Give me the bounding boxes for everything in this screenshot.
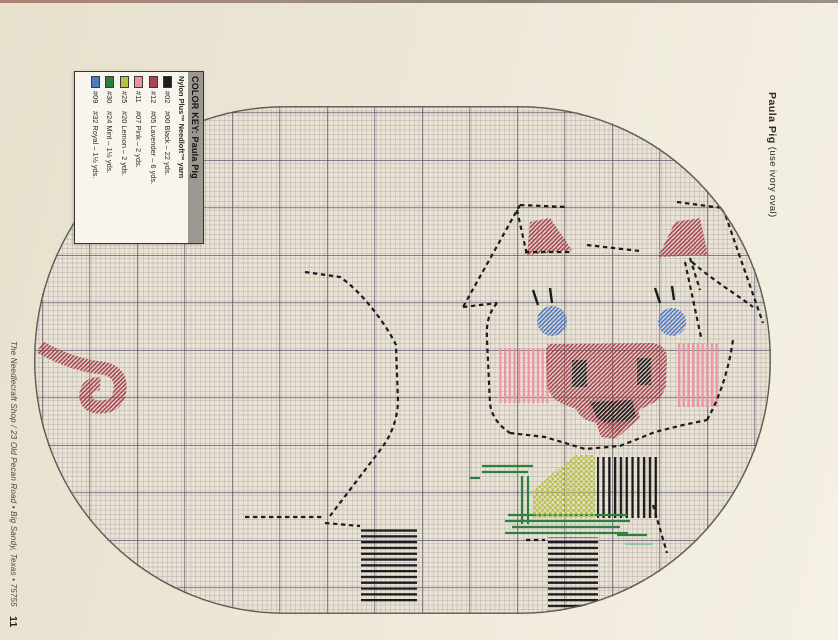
key-row: #11#07 Pink – 2 yds. — [132, 74, 147, 241]
color-key-header: Nylon Plus™ Needloft™ yarn — [175, 74, 187, 241]
needloft-yarn-label: #32 Royal – 1½ yds. — [91, 111, 100, 178]
color-swatch — [163, 76, 172, 88]
color-key-body: Nylon Plus™ Needloft™ yarn #02#00 Black … — [75, 72, 188, 243]
color-swatch — [105, 76, 114, 88]
color-swatch — [149, 76, 158, 88]
cheek-right-pink — [677, 343, 720, 407]
color-key-rows: #02#00 Black – 22 yds.#12#05 Lavender – … — [88, 74, 175, 241]
nylon-plus-number: #02 — [163, 91, 172, 108]
needloft-yarn-label: #24 Mint – 1½ yds. — [105, 111, 114, 173]
nostril-left — [572, 360, 587, 387]
key-row: #25#20 Lemon – 2 yds. — [117, 74, 132, 241]
scanned-pattern-page: COLOR KEY: Paula Pig Nylon Plus™ Needlof… — [0, 0, 838, 640]
left-margin-publisher: The Needlecraft Shop / 23 Old Pecan Road… — [7, 341, 19, 627]
color-key-title: COLOR KEY: Paula Pig — [188, 72, 203, 243]
needloft-yarn-label: #05 Lavender – 6 yds. — [149, 111, 158, 184]
key-row: #02#00 Black – 22 yds. — [161, 74, 176, 241]
pattern-title: Paula Pig — [766, 92, 778, 144]
color-key-title-name: Paula Pig — [190, 134, 200, 179]
pattern-subtitle: (use ivory oval) — [767, 144, 778, 218]
nylon-plus-number: #12 — [149, 91, 158, 108]
back-leg-stitches — [361, 527, 417, 603]
front-leg-stitches — [548, 537, 598, 611]
color-swatch — [120, 76, 129, 88]
needloft-yarn-label: #07 Pink – 2 yds. — [134, 111, 143, 168]
front-upper-leg-stitches — [597, 457, 658, 518]
publisher-text: The Needlecraft Shop / 23 Old Pecan Road… — [9, 341, 18, 607]
right-margin-caption: Paula Pig (use ivory oval) — [766, 92, 778, 218]
nylon-plus-number: #11 — [134, 91, 143, 108]
color-swatch — [134, 76, 143, 88]
nostril-right — [637, 358, 651, 385]
page-number: 11 — [7, 616, 19, 628]
color-key: COLOR KEY: Paula Pig Nylon Plus™ Needlof… — [74, 71, 204, 244]
nylon-plus-number: #25 — [120, 91, 129, 108]
scan-edge-line — [0, 0, 838, 3]
key-row: #30#24 Mint – 1½ yds. — [103, 74, 118, 241]
key-row: #09#32 Royal – 1½ yds. — [88, 74, 103, 241]
needloft-yarn-label: #20 Lemon – 2 yds. — [120, 111, 129, 176]
eye-left — [537, 306, 567, 336]
color-swatch — [91, 76, 100, 88]
color-key-title-label: COLOR KEY: — [190, 76, 200, 134]
color-key-box: COLOR KEY: Paula Pig Nylon Plus™ Needlof… — [74, 71, 204, 244]
key-row: #12#05 Lavender – 6 yds. — [146, 74, 161, 241]
nylon-plus-number: #09 — [91, 91, 100, 108]
needloft-yarn-label: #00 Black – 22 yds. — [163, 111, 172, 176]
eye-right — [658, 308, 686, 336]
cheek-left-pink — [498, 348, 550, 403]
nylon-plus-number: #30 — [105, 91, 114, 108]
